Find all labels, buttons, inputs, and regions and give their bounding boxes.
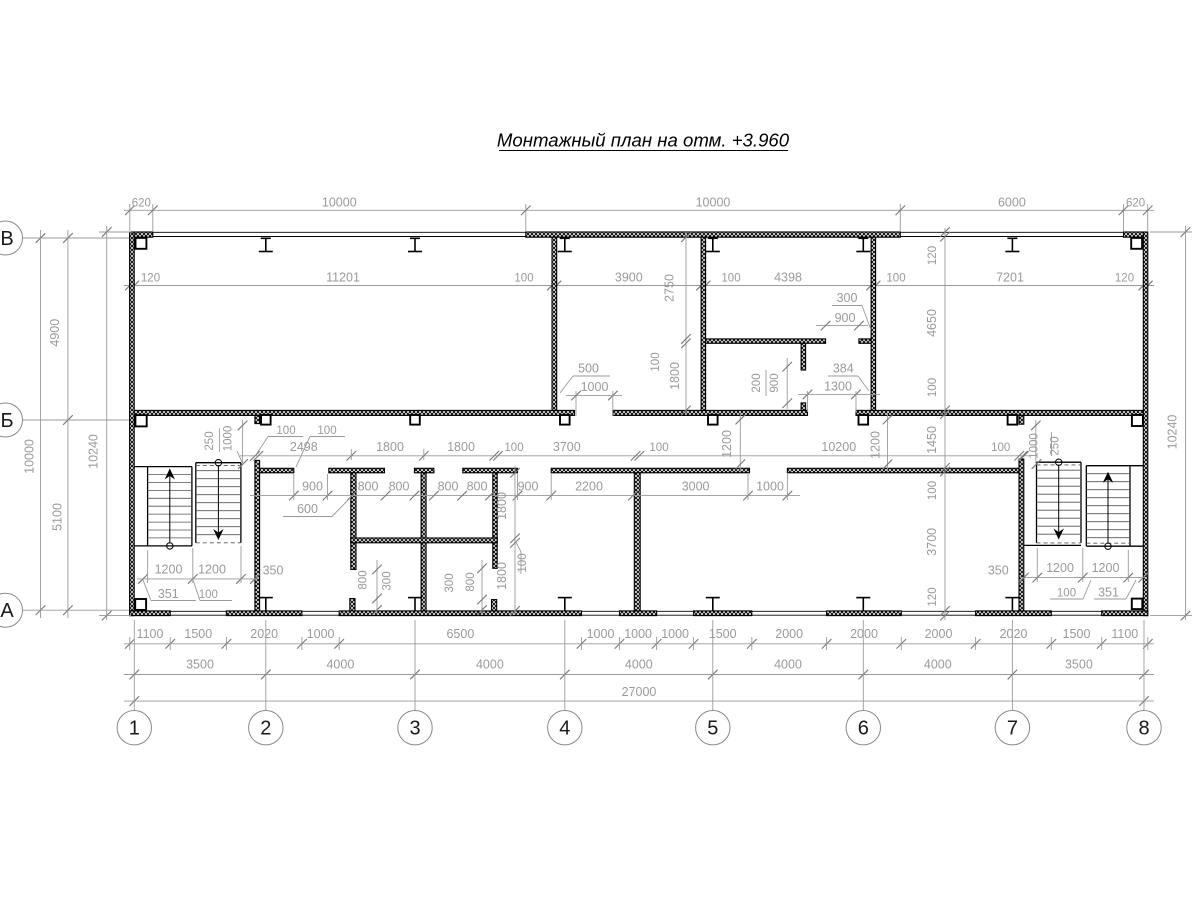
svg-text:351: 351 [158, 587, 179, 601]
svg-text:120: 120 [927, 246, 939, 265]
svg-text:4000: 4000 [326, 657, 354, 671]
svg-text:1200: 1200 [155, 563, 183, 577]
svg-text:2498: 2498 [290, 440, 318, 454]
svg-text:2200: 2200 [575, 480, 603, 494]
svg-text:1800: 1800 [495, 492, 509, 520]
svg-text:1000: 1000 [581, 380, 609, 394]
svg-text:3700: 3700 [553, 440, 581, 454]
svg-text:1800: 1800 [668, 362, 682, 390]
svg-text:7201: 7201 [996, 271, 1024, 285]
svg-text:1100: 1100 [137, 627, 164, 641]
svg-text:2000: 2000 [775, 627, 803, 641]
svg-text:1000: 1000 [661, 627, 689, 641]
svg-text:1000: 1000 [587, 627, 615, 641]
svg-text:800: 800 [465, 572, 477, 591]
svg-text:1300: 1300 [824, 380, 852, 394]
svg-text:10240: 10240 [1166, 415, 1180, 450]
svg-text:4000: 4000 [476, 657, 504, 671]
svg-text:4650: 4650 [925, 309, 939, 337]
svg-text:100: 100 [886, 273, 905, 285]
svg-text:1800: 1800 [447, 440, 475, 454]
svg-text:351: 351 [1098, 586, 1119, 600]
svg-text:100: 100 [199, 589, 218, 601]
svg-text:3000: 3000 [682, 480, 710, 494]
svg-text:800: 800 [358, 480, 379, 494]
svg-text:100: 100 [991, 442, 1010, 454]
svg-text:10240: 10240 [86, 434, 100, 469]
svg-text:10000: 10000 [23, 439, 37, 474]
svg-text:900: 900 [835, 311, 856, 325]
svg-text:100: 100 [276, 425, 295, 437]
svg-text:6500: 6500 [446, 627, 474, 641]
svg-text:350: 350 [263, 564, 284, 578]
svg-text:1500: 1500 [184, 627, 212, 641]
svg-text:600: 600 [297, 502, 318, 516]
svg-text:120: 120 [141, 273, 160, 285]
svg-text:6: 6 [858, 718, 869, 740]
svg-text:100: 100 [317, 425, 336, 437]
svg-text:Монтажный план на отм. +3.960: Монтажный план на отм. +3.960 [497, 130, 790, 151]
svg-text:3700: 3700 [925, 528, 939, 556]
svg-text:2020: 2020 [250, 627, 278, 641]
svg-text:10000: 10000 [696, 196, 731, 210]
svg-text:100: 100 [504, 442, 523, 454]
svg-text:800: 800 [358, 570, 370, 589]
svg-text:4000: 4000 [625, 657, 653, 671]
svg-text:250: 250 [204, 431, 216, 450]
svg-text:1100: 1100 [1111, 627, 1138, 641]
svg-text:10200: 10200 [821, 440, 856, 454]
svg-text:4000: 4000 [924, 657, 952, 671]
svg-text:800: 800 [438, 480, 459, 494]
svg-text:120: 120 [1115, 273, 1134, 285]
svg-text:300: 300 [444, 573, 456, 592]
svg-text:1: 1 [129, 718, 140, 740]
svg-text:4900: 4900 [48, 319, 62, 347]
svg-text:5: 5 [707, 718, 718, 740]
svg-text:1200: 1200 [1092, 561, 1120, 575]
svg-text:В: В [0, 228, 13, 250]
svg-text:4000: 4000 [774, 657, 802, 671]
svg-text:3900: 3900 [615, 271, 643, 285]
svg-text:2020: 2020 [1000, 627, 1028, 641]
svg-text:2000: 2000 [850, 627, 878, 641]
svg-text:384: 384 [833, 362, 854, 376]
svg-text:100: 100 [650, 352, 662, 371]
svg-text:1000: 1000 [1028, 433, 1040, 459]
svg-text:800: 800 [467, 480, 488, 494]
svg-text:3500: 3500 [1065, 657, 1093, 671]
svg-text:5100: 5100 [51, 503, 65, 531]
svg-text:1500: 1500 [1063, 627, 1091, 641]
svg-text:300: 300 [837, 291, 858, 305]
svg-text:1200: 1200 [869, 431, 883, 459]
svg-text:620: 620 [1126, 198, 1145, 210]
svg-text:2000: 2000 [925, 627, 953, 641]
svg-text:100: 100 [927, 481, 939, 500]
svg-text:3: 3 [409, 718, 420, 740]
svg-text:200: 200 [751, 373, 763, 392]
svg-text:1000: 1000 [223, 426, 235, 452]
svg-text:Б: Б [0, 410, 13, 432]
svg-text:120: 120 [927, 587, 939, 606]
svg-text:1450: 1450 [925, 426, 939, 454]
svg-text:350: 350 [988, 564, 1009, 578]
svg-text:11201: 11201 [326, 271, 360, 285]
svg-text:1200: 1200 [720, 430, 734, 458]
svg-text:300: 300 [381, 571, 393, 590]
svg-text:8: 8 [1138, 718, 1149, 740]
svg-text:4398: 4398 [774, 271, 802, 285]
svg-text:27000: 27000 [622, 685, 657, 699]
svg-text:100: 100 [721, 273, 740, 285]
svg-text:6000: 6000 [998, 196, 1026, 210]
svg-text:1200: 1200 [1046, 561, 1074, 575]
svg-text:620: 620 [132, 198, 151, 210]
svg-text:900: 900 [518, 480, 539, 494]
svg-text:1800: 1800 [495, 562, 509, 590]
svg-text:500: 500 [578, 362, 599, 376]
svg-text:900: 900 [302, 480, 323, 494]
svg-text:10000: 10000 [322, 196, 357, 210]
svg-text:1800: 1800 [376, 440, 404, 454]
svg-text:А: А [0, 600, 14, 622]
svg-text:100: 100 [1057, 588, 1076, 600]
svg-text:4: 4 [559, 718, 570, 740]
svg-text:1000: 1000 [307, 627, 335, 641]
svg-text:1000: 1000 [624, 627, 652, 641]
svg-text:100: 100 [927, 378, 939, 397]
svg-text:2750: 2750 [663, 274, 677, 302]
svg-text:7: 7 [1007, 718, 1018, 740]
svg-text:3500: 3500 [186, 657, 214, 671]
svg-text:1200: 1200 [198, 563, 226, 577]
svg-text:1000: 1000 [756, 480, 784, 494]
svg-text:100: 100 [649, 442, 668, 454]
svg-text:2: 2 [260, 718, 271, 740]
svg-text:900: 900 [769, 373, 781, 392]
svg-text:100: 100 [517, 553, 529, 572]
svg-text:100: 100 [514, 273, 533, 285]
svg-text:800: 800 [389, 480, 410, 494]
